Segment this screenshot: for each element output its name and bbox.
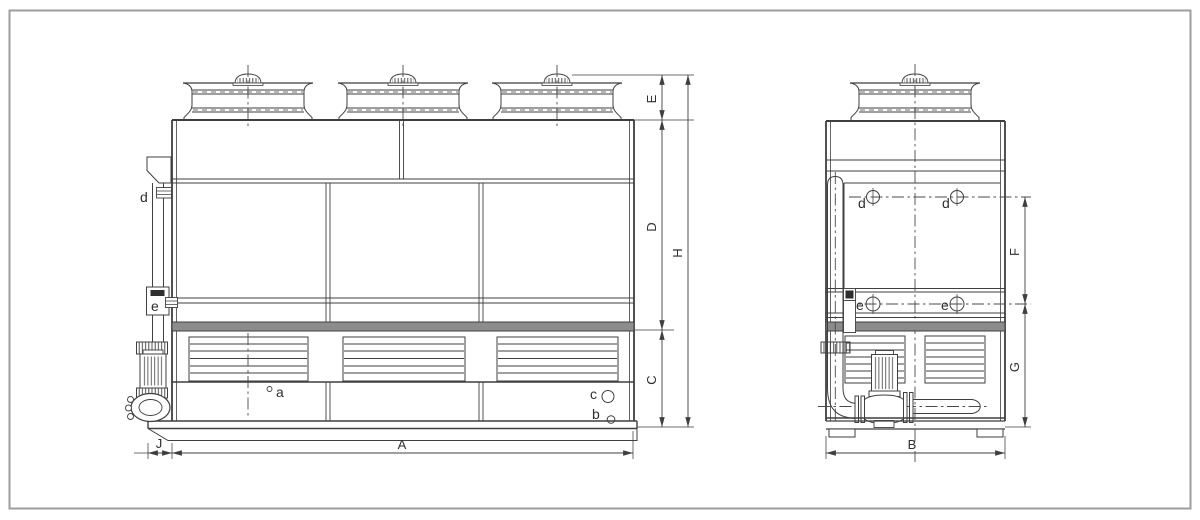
- fan-cowl-3: [492, 65, 622, 128]
- dim-label-J: J: [156, 436, 163, 451]
- inlet-header: [147, 157, 171, 183]
- connection-d-flange: [157, 188, 172, 199]
- cooling-tower-technical-drawing: a c b d e: [0, 0, 1200, 520]
- drawing-canvas: a c b d e: [0, 0, 1200, 520]
- connection-c-label: c: [590, 386, 597, 402]
- front-view: a c b d e: [126, 65, 695, 459]
- dim-label-H: H: [670, 248, 685, 257]
- connection-d-label: d: [140, 189, 148, 205]
- connection-e-left-label: e: [856, 297, 864, 313]
- side-base: [826, 418, 1005, 437]
- dim-label-D: D: [644, 222, 659, 231]
- front-eliminator-band: [172, 322, 634, 331]
- front-basin: a c b: [172, 382, 634, 423]
- dim-label-B: B: [908, 437, 917, 452]
- connection-e-label: e: [151, 298, 159, 314]
- side-foot-right: [977, 429, 1003, 437]
- front-base: [148, 421, 637, 441]
- connection-b-label: b: [592, 406, 600, 422]
- pump-volute: [131, 394, 170, 422]
- front-dimensions: E D C H A J: [134, 75, 694, 459]
- front-pump: [126, 342, 171, 422]
- side-foot-left: [829, 429, 855, 437]
- connection-e-right-label: e: [941, 297, 949, 313]
- dim-label-C: C: [644, 375, 659, 384]
- side-connections: d d e e: [843, 188, 1031, 333]
- connection-e-badge: [151, 290, 165, 296]
- connection-c-mark: [602, 391, 614, 403]
- page-border: [10, 11, 1191, 509]
- side-view: d d e e: [818, 64, 1031, 462]
- front-louvers: [189, 333, 618, 416]
- connection-d-right-label: d: [942, 195, 950, 211]
- connection-a-label: a: [276, 384, 284, 400]
- dim-label-E: E: [644, 94, 659, 103]
- connection-a-mark: [267, 387, 272, 392]
- dim-label-A: A: [398, 437, 407, 452]
- side-pump-volute: [865, 395, 904, 424]
- side-e-badge: [846, 291, 854, 299]
- connection-b-mark: [607, 416, 615, 424]
- dim-label-F: F: [1007, 248, 1022, 256]
- suction-elbow: [828, 388, 859, 419]
- fan-cowl-2: [338, 65, 468, 128]
- connection-d-left-label: d: [858, 195, 866, 211]
- connection-e-flange: [166, 298, 178, 308]
- dim-label-G: G: [1007, 362, 1022, 372]
- fan-cowl-1: [183, 65, 313, 128]
